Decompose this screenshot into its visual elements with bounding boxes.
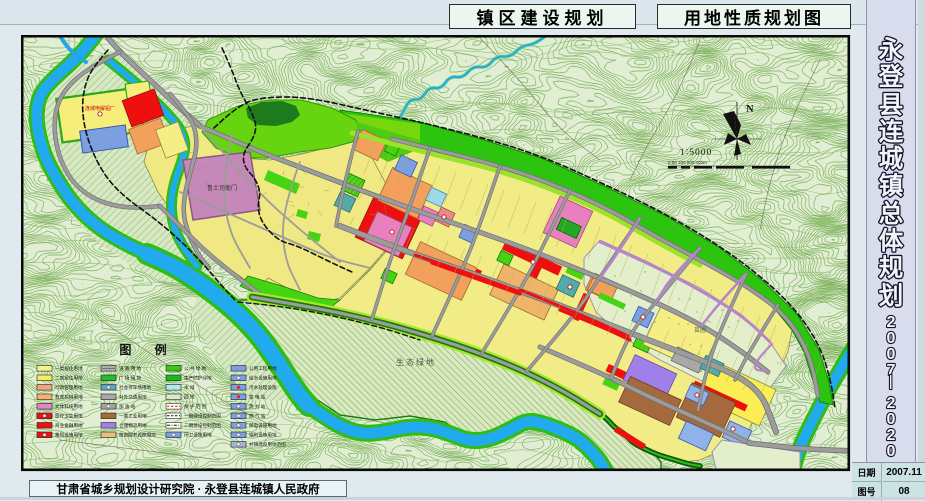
svg-text:一类居住用地: 一类居住用地 — [55, 365, 83, 372]
svg-text:教育机构用地: 教育机构用地 — [55, 394, 83, 401]
svg-text:规: 规 — [879, 254, 904, 282]
svg-text:镇: 镇 — [879, 172, 904, 200]
svg-text:N: N — [746, 104, 754, 115]
svg-text:污水处理设施: 污水处理设施 — [249, 384, 277, 391]
svg-text:社会停车场用地: 社会停车场用地 — [119, 384, 152, 391]
svg-text:给水设施用地: 给水设施用地 — [249, 375, 277, 382]
svg-text:一期建设控制范围: 一期建设控制范围 — [184, 413, 221, 420]
svg-text:旅游服务设施用地: 旅游服务设施用地 — [119, 432, 156, 439]
svg-text:生态绿地: 生态绿地 — [396, 357, 436, 367]
svg-text:燃 气 站: 燃 气 站 — [249, 413, 266, 420]
svg-text:2: 2 — [887, 314, 896, 331]
svg-text:连: 连 — [879, 118, 904, 146]
svg-text:邮电设施用地: 邮电设施用地 — [249, 422, 277, 429]
svg-text:2: 2 — [887, 395, 896, 412]
svg-text:福利设施用地: 福利设施用地 — [249, 432, 277, 439]
svg-text:生产防护绿地: 生产防护绿地 — [184, 375, 212, 382]
svg-text:仓储物流用地: 仓储物流用地 — [119, 422, 147, 429]
svg-text:划: 划 — [879, 282, 904, 310]
svg-text:—: — — [884, 375, 900, 389]
svg-text:热 力 站: 热 力 站 — [249, 403, 266, 410]
svg-text:变 电 站: 变 电 站 — [249, 394, 266, 401]
svg-text:道 路 用 地: 道 路 用 地 — [119, 365, 142, 372]
svg-text:商业金融用地: 商业金融用地 — [55, 422, 83, 429]
svg-text:登: 登 — [878, 63, 904, 91]
svg-text:体: 体 — [879, 227, 904, 255]
svg-text:园 地: 园 地 — [184, 394, 195, 401]
svg-text:二期建设控制范围: 二期建设控制范围 — [184, 422, 221, 429]
svg-text:加 油 站: 加 油 站 — [119, 403, 136, 410]
svg-text:2: 2 — [887, 427, 896, 444]
svg-text:城: 城 — [879, 145, 904, 173]
svg-text:环卫设施用地: 环卫设施用地 — [184, 432, 212, 439]
svg-text:广 场 用 地: 广 场 用 地 — [119, 375, 142, 382]
svg-text:对外交通用地: 对外交通用地 — [119, 394, 147, 401]
svg-text:0 50 100 200 4: 0 50 100 200 400m — [668, 160, 707, 165]
svg-text:文体科技用地: 文体科技用地 — [55, 403, 83, 410]
svg-text:水 域: 水 域 — [184, 384, 195, 390]
svg-text:永: 永 — [879, 36, 904, 64]
svg-text:集贸设施用地: 集贸设施用地 — [55, 432, 83, 439]
svg-text:公用工程用地: 公用工程用地 — [249, 365, 277, 372]
svg-text:0: 0 — [887, 330, 896, 347]
svg-text:鲁土司衙门: 鲁土司衙门 — [207, 184, 237, 192]
svg-text:图 例: 图 例 — [119, 342, 176, 357]
svg-text:保 护 范 围: 保 护 范 围 — [184, 403, 207, 410]
svg-text:县: 县 — [879, 92, 904, 119]
svg-text:村镇建设用地范围: 村镇建设用地范围 — [249, 441, 286, 448]
svg-text:0: 0 — [887, 443, 896, 460]
svg-text:公 共 绿 地: 公 共 绿 地 — [184, 365, 207, 372]
svg-text:二类居住用地: 二类居住用地 — [55, 375, 83, 382]
svg-text:行政管理用地: 行政管理用地 — [55, 384, 83, 391]
svg-text:苗圃: 苗圃 — [694, 326, 706, 334]
svg-text:连城电解铝厂: 连城电解铝厂 — [85, 105, 115, 112]
svg-text:一类工业用地: 一类工业用地 — [119, 413, 147, 420]
svg-text:1∶5000: 1∶5000 — [680, 148, 712, 158]
svg-text:总: 总 — [879, 200, 904, 228]
svg-text:0: 0 — [887, 346, 896, 363]
svg-text:0: 0 — [887, 411, 896, 428]
svg-text:医疗卫生用地: 医疗卫生用地 — [55, 413, 83, 420]
